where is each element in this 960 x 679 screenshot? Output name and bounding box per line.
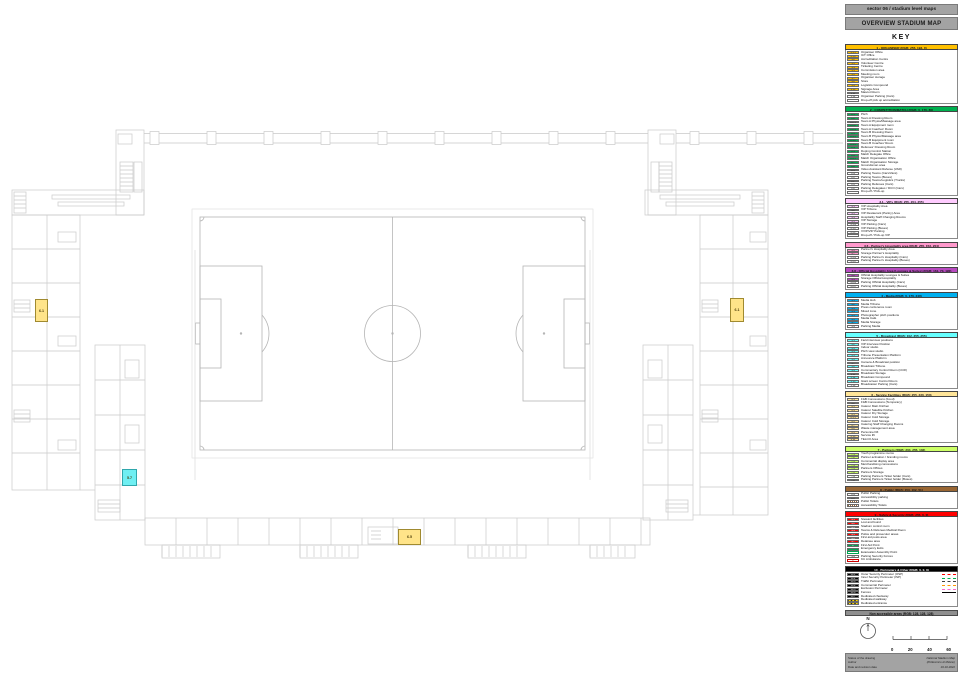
ambulance-icon: + (847, 559, 859, 562)
color-chip: 6.9 (847, 431, 859, 434)
color-chip: 5.12 (847, 376, 859, 379)
plan-marker: 6.1 (35, 299, 48, 322)
legend-sections: 1 - ORGANISER (RGB: 255, 192, 0)1.1.1Org… (845, 44, 958, 607)
legend-item: Accessibility Toilets (847, 503, 956, 507)
color-chip: 9.4 (847, 529, 859, 532)
legend-section-3.8: 3.8 - Official Hospitality Area (Lounges… (845, 267, 958, 290)
plan-marker: 6.5 (398, 529, 421, 545)
color-chip: 3.9 (847, 278, 859, 281)
color-chip: 2.2 (847, 117, 859, 120)
compass-icon (858, 621, 878, 641)
color-chip: 2.1 (847, 113, 859, 116)
color-chip: 7.4 (847, 464, 859, 467)
legend-item-label: 9.b Ambulance (861, 558, 956, 562)
legend-item-label: Drop-off pick up accreditation (861, 99, 956, 103)
color-chip: 6.3 (847, 405, 859, 408)
title-block-left: Status of the drawing Author Date and re… (848, 656, 877, 670)
color-chip: 3.1 (847, 205, 859, 208)
color-chip: 5.1 (847, 339, 859, 342)
color-chip: 5.14 (847, 384, 859, 387)
color-chip: 3.2 (847, 209, 859, 212)
color-chip: 2.8 (847, 165, 859, 168)
color-chip (847, 191, 859, 194)
color-chip: 5.8 (847, 365, 859, 368)
section-items: 4.1Media Hub4.2Media Tribune4.3Press con… (845, 298, 958, 330)
map-title: OVERVIEW STADIUM MAP (845, 17, 958, 30)
football-pitch (196, 217, 590, 450)
legend-item-label: Parking Partner's Hospitality (Buses) (861, 259, 956, 263)
color-chip: 5.2 (847, 343, 859, 346)
color-chip: 2.c (847, 180, 859, 183)
legend-item: 5.14Broadcaster Parking (Cars) (847, 383, 956, 387)
perimeter-line-sample (942, 589, 956, 590)
legend-item-label: Accessibility Toilets (861, 504, 956, 508)
legend-item: Drop-off / Pick-up (847, 190, 956, 194)
color-chip: 6.4 (847, 409, 859, 412)
legend-section-1: 1 - ORGANISER (RGB: 255, 192, 0)1.1.1Org… (845, 44, 958, 104)
revision-date: 19.10.2022 (927, 665, 955, 670)
scale-ruler (891, 634, 951, 641)
color-chip: 6.5.1 (847, 416, 859, 419)
first-aid-icon: + (847, 544, 859, 547)
plan-marker: 6.1 (730, 298, 744, 322)
color-chip: 4.2 (847, 303, 859, 306)
color-chip: 9.6 (847, 537, 859, 540)
color-chip: 4.1 (847, 299, 859, 302)
color-chip: 10.2 (847, 577, 859, 580)
perimeter-line-sample (942, 581, 956, 582)
legend-section-3.1: 3.1 - VIPs (RGB: 255, 204, 255)3.1VIP Ho… (845, 198, 958, 239)
color-chip: 6.8 (847, 427, 859, 430)
color-chip: 3.1.b (847, 227, 859, 230)
date-label: Date and revision date (848, 665, 877, 670)
color-chip: 5.11 (847, 373, 859, 376)
color-chip: 4.5 (847, 314, 859, 317)
section-items: 5.1Field interview positions5.2VIP Inter… (845, 338, 958, 388)
legend-section-8: 8 - Public (RGB: 153, 102, 51)8.aPublic … (845, 486, 958, 509)
color-chip: 6.2 (847, 402, 859, 405)
color-chip: 2.7 (847, 161, 859, 164)
color-chip: 8.b (847, 497, 859, 500)
color-chip: 2.3 (847, 132, 859, 135)
legend-item-label: Dedicated entrance (861, 602, 956, 606)
color-chip: 3.1.a (847, 223, 859, 226)
scale-tick: 20 (908, 647, 913, 652)
color-chip: 4.4 (847, 310, 859, 313)
legend-section-9: 9 - Safety & Security (RGB: 255, 0, 0)9.… (845, 511, 958, 563)
section-items: 7.1Youth programme rooms7.2Partner activ… (845, 452, 958, 484)
legend-item-label: Parking Official Hospitality (Buses) (861, 285, 956, 289)
color-chip: 6.10 (847, 435, 859, 438)
color-chip: 5.9 (847, 369, 859, 372)
color-chip: 1.2 (847, 58, 859, 61)
legend-item: 7.bParking Partners Ticket holder (Buses… (847, 478, 956, 482)
color-chip: 1.6 (847, 73, 859, 76)
color-chip: 1.1.2 (847, 55, 859, 58)
color-chip: 1.11 (847, 92, 859, 95)
sector-header: sector 06 / stadium level maps (845, 4, 958, 15)
color-chip: 7.2 (847, 456, 859, 459)
color-chip: 6.7 (847, 424, 859, 427)
overview-stadium-map-page: 6.16.15.76.5 sector 06 / stadium level m… (0, 0, 960, 679)
color-chip: 5.13 (847, 380, 859, 383)
color-chip: 2.3.3 (847, 143, 859, 146)
legend-section-3.6: 3.6 - Partner's Hospitality area (RGB: 2… (845, 242, 958, 265)
section-items: 1.1.1Organiser Office1.1.2ICT Office1.2A… (845, 50, 958, 104)
assembly-icon (847, 551, 859, 554)
color-chip: 2.3.1 (847, 135, 859, 138)
legend-section-7: 7 - Partners (RGB: 204, 255, 102)7.1Yout… (845, 446, 958, 484)
color-chip: 2.5 (847, 150, 859, 153)
institution: (Politecnico di Milano) (927, 660, 955, 665)
color-chip: 10.6 (847, 591, 859, 594)
color-chip: 5.5 (847, 354, 859, 357)
color-chip: 3.6 (847, 249, 859, 252)
legend-item: 4.aParking Media (847, 325, 956, 329)
color-chip: 7.3 (847, 460, 859, 463)
color-chip: 9.3 (847, 526, 859, 529)
color-chip: 6.6 (847, 420, 859, 423)
section-items: 8.aPublic Parking8.bAccessibility parkin… (845, 492, 958, 509)
legend-item: Drop-off pick up accreditation (847, 99, 956, 103)
color-chip: 3.8.b (847, 285, 859, 288)
color-chip: 3.8.a (847, 281, 859, 284)
plan-marker: 5.7 (122, 469, 137, 486)
scale-tick-labels: 0204060 (891, 647, 951, 652)
color-chip: 5.4 (847, 350, 859, 353)
color-chip: 2.2.2 (847, 124, 859, 127)
color-chip: 5.7 (847, 362, 859, 365)
legend-item-label: TELCO Area (861, 438, 956, 442)
compass-and-scale: N 0204060 (845, 608, 958, 650)
color-chip: 10.3 (847, 580, 859, 583)
color-chip: 4.a (847, 325, 859, 328)
scale-tick: 60 (946, 647, 951, 652)
section-items: 6.1F&B Concessions (Food)6.2F&B Concessi… (845, 397, 958, 443)
color-chip: 8.a (847, 493, 859, 496)
color-chip: 1.12 (847, 95, 859, 98)
color-chip: 2.6 (847, 154, 859, 157)
color-chip: 1.4 (847, 66, 859, 69)
color-chip: 2.2.1 (847, 121, 859, 124)
legend-item: 3.6.bParking Partner's Hospitality (Buse… (847, 259, 956, 263)
legend-section-6: 6 - Service Facilities (RGB: 255, 230, 1… (845, 391, 958, 443)
legend-panel: sector 06 / stadium level maps OVERVIEW … (843, 0, 960, 679)
toilet-icon (847, 500, 859, 503)
color-chip: 10.7 (847, 595, 859, 598)
color-chip: 6.5 (847, 413, 859, 416)
color-chip: 7.1 (847, 453, 859, 456)
color-chip: 10.1 (847, 573, 859, 576)
color-chip: 9.2 (847, 522, 859, 525)
legend-item-label: Broadcaster Parking (Cars) (861, 383, 956, 387)
scale-tick: 0 (891, 647, 893, 652)
color-chip: 3.7 (847, 252, 859, 255)
color-chip: 6.1 (847, 398, 859, 401)
color-chip: 4.7 (847, 321, 859, 324)
key-title: KEY (845, 34, 958, 41)
color-chip: 7.6 (847, 471, 859, 474)
color-chip: 3.6.a (847, 256, 859, 259)
color-chip: 2.b (847, 176, 859, 179)
color-chip: 3.3 (847, 212, 859, 215)
color-chip: 1.7 (847, 77, 859, 80)
perimeter-line-sample (942, 578, 956, 579)
stripes-icon (847, 599, 859, 602)
title-block: Status of the drawing Author Date and re… (845, 653, 958, 672)
color-chip: 2.4 (847, 146, 859, 149)
color-chip: 3.4 (847, 216, 859, 219)
section-items: 3.8Official Hospitality Lounges & Suites… (845, 273, 958, 290)
scale-tick: 40 (927, 647, 932, 652)
section-items: 2.1Pitch2.2Team A Dressing Room2.2.1Team… (845, 112, 958, 195)
color-chip: 3.8 (847, 274, 859, 277)
perimeter-line-sample (942, 574, 956, 575)
color-chip: 4.3 (847, 307, 859, 310)
color-chip: 2.9 (847, 169, 859, 172)
color-chip: 2.2.3 (847, 128, 859, 131)
color-chip: 9.1 (847, 518, 859, 521)
color-chip: 10.4 (847, 584, 859, 587)
section-items: 9.1Steward facilities9.2Lost and found9.… (845, 517, 958, 563)
title-block-right: National Stadium Map (Politecnico di Mil… (927, 656, 955, 670)
color-chip: 1.9 (847, 84, 859, 87)
legend-item: +9.b Ambulance (847, 558, 956, 562)
color-chip: 10.5 (847, 588, 859, 591)
color-chip: 6.11 (847, 438, 859, 441)
color-chip (847, 99, 859, 102)
color-chip: 3.6.b (847, 260, 859, 263)
scale-bar: 0204060 (891, 628, 951, 652)
color-chip: 5.3 (847, 347, 859, 350)
legend-section-10: 10 - Perimeters & Other (RGB: 0, 0, 0)10… (845, 566, 958, 607)
legend-item: 3.8.bParking Official Hospitality (Buses… (847, 285, 956, 289)
stadium-structure (12, 130, 843, 558)
legend-item-label: Drop-off / Pick-up VIP (861, 234, 956, 238)
color-chip: 1.5 (847, 69, 859, 72)
color-chip (847, 234, 859, 237)
color-chip: 2.6.1 (847, 157, 859, 160)
legend-item: Drop-off / Pick-up VIP (847, 234, 956, 238)
accessible-toilet-icon (847, 504, 859, 507)
stadium-floor-plan (0, 0, 843, 679)
color-chip: 7.5 (847, 467, 859, 470)
legend-item-label: Parking Partners Ticket holder (Buses) (861, 478, 956, 482)
legend-item-label: Drop-off / Pick-up (861, 190, 956, 194)
color-chip: 2.a (847, 172, 859, 175)
legend-section-2: 2 - COMPETITION/MATCH (RGB: 0, 176, 80)2… (845, 106, 958, 195)
color-chip: 3.1.c (847, 231, 859, 234)
exit-icon (847, 548, 859, 551)
color-chip: 1.3 (847, 62, 859, 65)
legend-item: 6.11TELCO Area (847, 438, 956, 442)
legend-item: Dedicated entrance (847, 602, 956, 606)
color-chip: 2.e (847, 187, 859, 190)
color-chip: 4.6 (847, 318, 859, 321)
color-chip: 1.8 (847, 80, 859, 83)
color-chip: 3.5 (847, 220, 859, 223)
legend-section-5: 5 - Broadcast (RGB: 102, 255, 255)5.1Fie… (845, 332, 958, 388)
color-chip: 2.3.2 (847, 139, 859, 142)
color-chip: 9.a (847, 555, 859, 558)
legend-item-label: Parking Media (861, 325, 956, 329)
color-chip: 1.10 (847, 88, 859, 91)
perimeter-line-sample (942, 592, 956, 593)
section-items: 3.6Partner's Hospitality Area3.7Storage … (845, 248, 958, 265)
section-items: 10.1Outer Security Perimeter (OSP)10.2In… (845, 572, 958, 607)
section-items: 3.1VIP Hospitality Area3.2VIP Tribune3.3… (845, 204, 958, 239)
perimeter-line-sample (942, 585, 956, 586)
color-chip: 9.7 (847, 540, 859, 543)
legend-section-4: 4 - Media (RGB: 0, 176, 240)4.1Media Hub… (845, 292, 958, 330)
color-chip: 2.d (847, 183, 859, 186)
color-chip: 1.1.1 (847, 51, 859, 54)
color-chip: 5.6 (847, 358, 859, 361)
color-chip: 7.b (847, 479, 859, 482)
color-chip: 7.a (847, 475, 859, 478)
stripes-icon (847, 602, 859, 605)
color-chip: 9.5 (847, 533, 859, 536)
north-compass: N (857, 616, 879, 646)
